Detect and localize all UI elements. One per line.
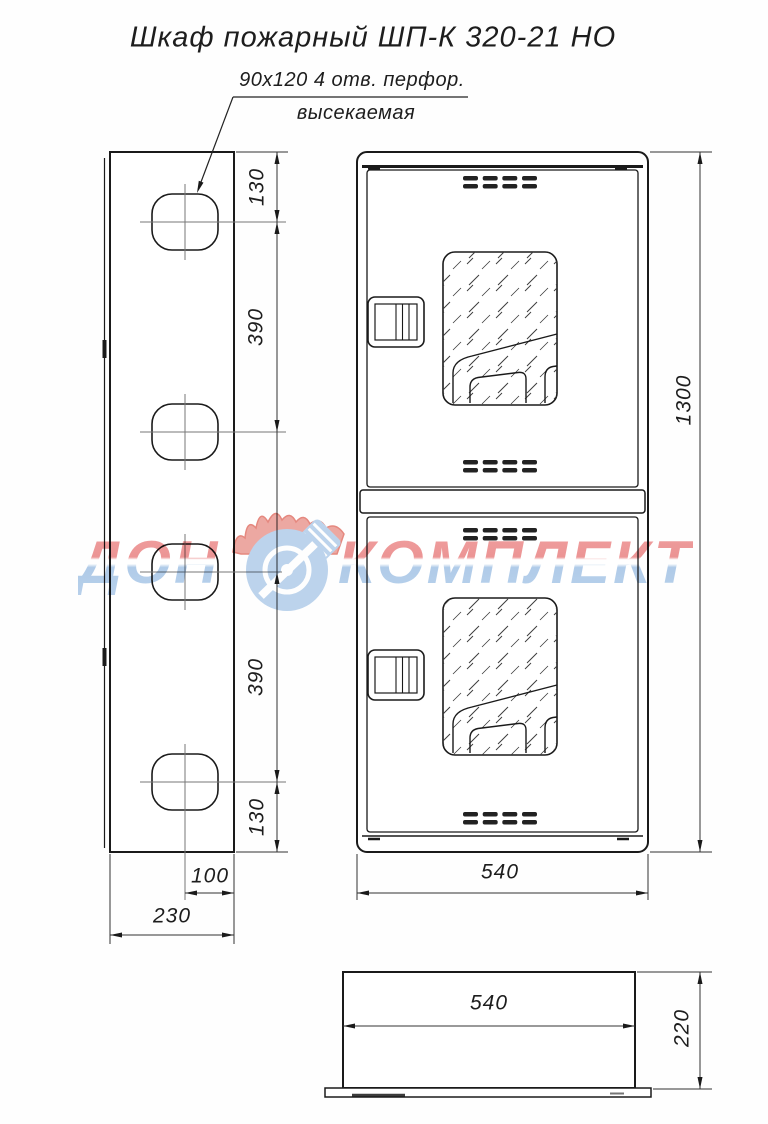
dim-front-540: 540 xyxy=(481,862,519,883)
front-view-drawing xyxy=(357,152,712,900)
perforation-note-line1: 90x120 4 отв. перфор. xyxy=(239,70,465,90)
dim-side-390-upper: 390 xyxy=(246,308,267,346)
dim-top-540: 540 xyxy=(470,993,508,1014)
dim-side-130-top: 130 xyxy=(247,168,268,206)
dim-front-1300: 1300 xyxy=(674,375,695,426)
dim-side-230: 230 xyxy=(153,906,191,927)
lower-door-handle xyxy=(368,650,424,700)
upper-door-handle xyxy=(368,297,424,347)
upper-door-window xyxy=(443,252,557,405)
dim-top-220: 220 xyxy=(672,1009,693,1047)
top-view-drawing xyxy=(325,972,712,1097)
lower-door-window xyxy=(443,598,557,755)
dim-side-100: 100 xyxy=(191,866,229,887)
perforation-note-line2: высекаемая xyxy=(297,103,415,123)
drawing-sheet: ДОН КОМПЛЕКТ Шкаф пожарный ШП-К 320-21 Н… xyxy=(0,0,768,1124)
drawing-title: Шкаф пожарный ШП-К 320-21 НО xyxy=(130,24,616,53)
dim-side-130-bottom: 130 xyxy=(247,798,268,836)
dim-side-390-lower: 390 xyxy=(246,658,267,696)
technical-drawing xyxy=(0,0,768,1124)
